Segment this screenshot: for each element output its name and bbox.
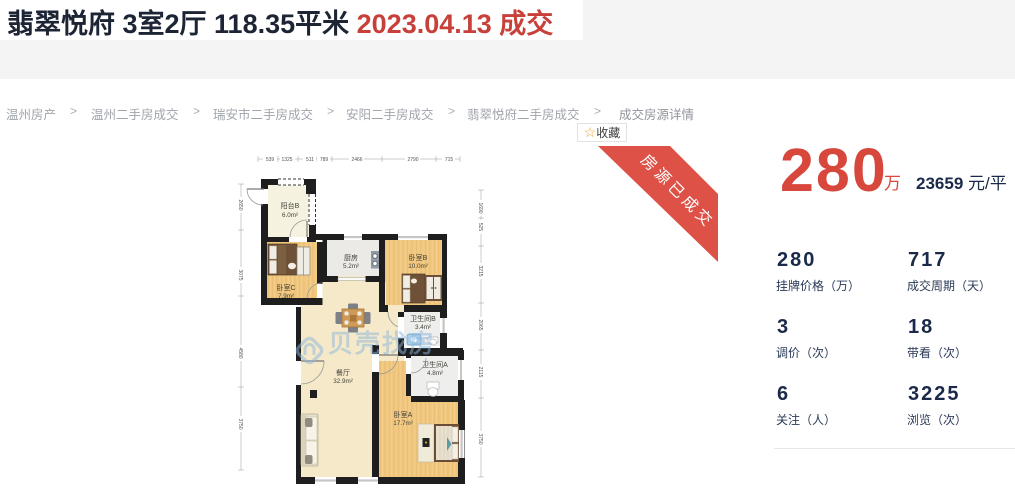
svg-text:10.0m²: 10.0m²	[408, 263, 428, 270]
svg-text:3750: 3750	[477, 433, 483, 444]
svg-text:阳台B: 阳台B	[281, 201, 300, 210]
svg-text:17.7m²: 17.7m²	[393, 420, 413, 427]
svg-text:卧室C: 卧室C	[276, 283, 295, 292]
svg-text:7.9m²: 7.9m²	[278, 293, 294, 300]
svg-text:2790: 2790	[407, 157, 418, 163]
svg-text:5.2m²: 5.2m²	[343, 263, 359, 270]
svg-text:3075: 3075	[237, 269, 243, 280]
svg-text:餐厅: 餐厅	[336, 368, 350, 377]
svg-text:贝壳找房: 贝壳找房	[328, 329, 436, 358]
svg-text:2065: 2065	[477, 319, 483, 330]
svg-text:4580: 4580	[237, 347, 243, 358]
svg-text:3.4m²: 3.4m²	[415, 324, 431, 331]
svg-text:1690: 1690	[477, 202, 483, 213]
svg-text:6.0m²: 6.0m²	[282, 212, 298, 219]
svg-text:511: 511	[306, 157, 314, 163]
svg-text:卫生间B: 卫生间B	[410, 314, 436, 323]
svg-text:卫生间A: 卫生间A	[422, 360, 448, 369]
svg-text:厨房: 厨房	[344, 253, 358, 262]
svg-text:1325: 1325	[281, 157, 292, 163]
svg-text:3215: 3215	[477, 265, 483, 276]
svg-text:3750: 3750	[237, 418, 243, 429]
svg-text:715: 715	[445, 157, 454, 163]
svg-text:卧室A: 卧室A	[394, 410, 413, 419]
svg-text:卧室B: 卧室B	[409, 253, 428, 262]
svg-text:2466: 2466	[351, 157, 362, 163]
svg-text:525: 525	[477, 223, 483, 232]
svg-text:4.8m²: 4.8m²	[427, 370, 443, 377]
svg-text:539: 539	[266, 157, 275, 163]
svg-text:2650: 2650	[237, 199, 243, 210]
svg-text:2115: 2115	[477, 367, 483, 378]
svg-text:32.9m²: 32.9m²	[333, 378, 353, 385]
svg-text:789: 789	[320, 157, 329, 163]
